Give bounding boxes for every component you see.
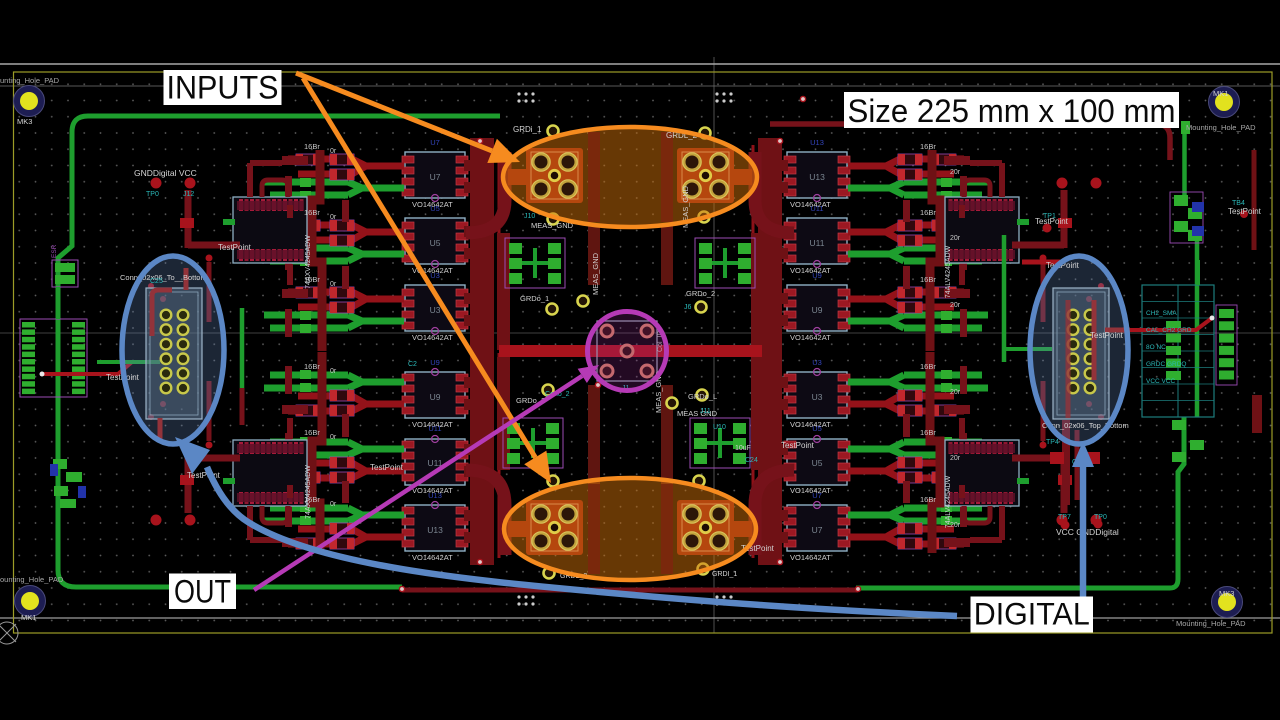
svg-text:MEAS_GND: MEAS_GND bbox=[591, 252, 600, 295]
svg-text:U5: U5 bbox=[430, 204, 440, 213]
svg-text:0r: 0r bbox=[330, 281, 337, 288]
svg-text:MK3: MK3 bbox=[1219, 589, 1234, 598]
svg-text:MEAS GND: MEAS GND bbox=[677, 409, 718, 418]
svg-text:20r: 20r bbox=[950, 169, 961, 176]
svg-text:VO14642AT: VO14642AT bbox=[790, 333, 831, 342]
svg-text:U5: U5 bbox=[812, 424, 822, 433]
svg-text:TestPoint: TestPoint bbox=[1228, 207, 1262, 216]
svg-text:74AXV4245ADW: 74AXV4245ADW bbox=[305, 235, 312, 289]
svg-text:GRDi_1: GRDi_1 bbox=[513, 125, 542, 134]
svg-text:TP0: TP0 bbox=[1094, 514, 1107, 521]
svg-text:16Br: 16Br bbox=[920, 275, 936, 284]
svg-text:GRDI_1: GRDI_1 bbox=[712, 571, 737, 578]
svg-text:U13: U13 bbox=[810, 138, 824, 147]
svg-text:VO14642AT: VO14642AT bbox=[412, 333, 453, 342]
svg-text:0r: 0r bbox=[330, 148, 337, 155]
svg-text:U5: U5 bbox=[812, 458, 823, 468]
svg-text:20r: 20r bbox=[950, 302, 961, 309]
svg-text:INPUTS: INPUTS bbox=[167, 69, 279, 105]
svg-text:U13: U13 bbox=[427, 525, 443, 535]
svg-text:Size 225 mm x 100 mm: Size 225 mm x 100 mm bbox=[848, 93, 1176, 129]
svg-text:TP4: TP4 bbox=[1046, 439, 1059, 446]
svg-text:MK3: MK3 bbox=[17, 117, 32, 126]
svg-text:Conn_02x06_To__Bottom: Conn_02x06_To__Bottom bbox=[120, 273, 207, 282]
svg-text:U7: U7 bbox=[812, 491, 822, 500]
svg-text:20r: 20r bbox=[950, 389, 961, 396]
svg-text:TB4: TB4 bbox=[1232, 200, 1245, 207]
svg-text:U3: U3 bbox=[430, 271, 440, 280]
svg-text:U11: U11 bbox=[810, 238, 825, 248]
svg-text:U7: U7 bbox=[430, 172, 441, 182]
svg-text:TestPoint: TestPoint bbox=[781, 441, 815, 450]
svg-text:16Br: 16Br bbox=[920, 208, 936, 217]
svg-text:C2: C2 bbox=[408, 361, 417, 368]
svg-text:VCC VCC: VCC VCC bbox=[1146, 378, 1176, 385]
svg-text:16Br: 16Br bbox=[304, 142, 320, 151]
svg-text:16Br: 16Br bbox=[920, 495, 936, 504]
svg-text:U11: U11 bbox=[810, 204, 823, 213]
svg-text:C25: C25 bbox=[150, 278, 163, 285]
svg-text:U9: U9 bbox=[812, 271, 822, 280]
svg-text:U9: U9 bbox=[430, 358, 440, 367]
svg-text:0r: 0r bbox=[330, 214, 337, 221]
svg-text:20r: 20r bbox=[950, 455, 961, 462]
svg-text:J6: J6 bbox=[684, 304, 692, 311]
svg-text:16Br: 16Br bbox=[920, 142, 936, 151]
svg-text:VO14642AT: VO14642AT bbox=[790, 420, 831, 429]
svg-text:DIGITAL: DIGITAL bbox=[974, 596, 1090, 632]
svg-text:GRDC GRDQ: GRDC GRDQ bbox=[1146, 361, 1186, 368]
svg-text:GRDo_1: GRDo_1 bbox=[520, 294, 549, 303]
svg-text:16Br: 16Br bbox=[304, 362, 320, 371]
svg-text:TestPoint: TestPoint bbox=[370, 463, 404, 472]
svg-text:10uF: 10uF bbox=[735, 445, 751, 452]
svg-text:TP1: TP1 bbox=[1043, 213, 1056, 220]
svg-text:0r: 0r bbox=[330, 434, 337, 441]
svg-text:VCC GNDDigital: VCC GNDDigital bbox=[1056, 527, 1119, 537]
svg-text:U13: U13 bbox=[809, 172, 825, 182]
svg-text:74ALV4245ADW: 74ALV4245ADW bbox=[945, 475, 952, 528]
svg-text:MK1: MK1 bbox=[21, 613, 36, 622]
svg-text:TestPoint: TestPoint bbox=[218, 243, 252, 252]
svg-text:8O NC: 8O NC bbox=[1146, 344, 1166, 351]
svg-text:U5: U5 bbox=[430, 238, 441, 248]
svg-text:VO14642AT: VO14642AT bbox=[790, 553, 831, 562]
svg-text:J12: J12 bbox=[183, 191, 194, 198]
svg-text:74AXV4245ADW: 74AXV4245ADW bbox=[305, 465, 312, 519]
svg-text:U3: U3 bbox=[812, 358, 822, 367]
svg-text:VO14642AT: VO14642AT bbox=[790, 486, 831, 495]
svg-text:0r: 0r bbox=[330, 368, 337, 375]
svg-text:74ALV4245ADW: 74ALV4245ADW bbox=[945, 245, 952, 298]
svg-text:J10: J10 bbox=[524, 213, 535, 220]
svg-text:16Br: 16Br bbox=[920, 428, 936, 437]
svg-text:MK1: MK1 bbox=[1213, 89, 1228, 98]
svg-text:OUT: OUT bbox=[174, 574, 231, 610]
svg-text:16Br: 16Br bbox=[304, 208, 320, 217]
svg-text:U11: U11 bbox=[428, 424, 441, 433]
svg-text:CAL_CH2 GRD: CAL_CH2 GRD bbox=[1146, 327, 1192, 334]
svg-text:0r: 0r bbox=[330, 501, 337, 508]
svg-text:GRDo_2: GRDo_2 bbox=[686, 289, 715, 298]
svg-text:Mounting_Hole_PAD: Mounting_Hole_PAD bbox=[1186, 123, 1256, 132]
svg-text:CH2_SMA: CH2_SMA bbox=[1146, 310, 1177, 317]
svg-text:VO14642AT: VO14642AT bbox=[412, 553, 453, 562]
svg-text:U13: U13 bbox=[428, 491, 442, 500]
svg-text:U7: U7 bbox=[430, 138, 440, 147]
svg-text:ESR: ESR bbox=[51, 244, 58, 258]
svg-text:16Br: 16Br bbox=[920, 362, 936, 371]
svg-text:GNDDigital VCC: GNDDigital VCC bbox=[134, 168, 197, 178]
svg-text:ounting_Hole_PAD: ounting_Hole_PAD bbox=[0, 575, 64, 584]
svg-text:U10: U10 bbox=[713, 424, 726, 431]
svg-text:TestPoint: TestPoint bbox=[1090, 331, 1124, 340]
svg-text:VO14642AT: VO14642AT bbox=[790, 266, 831, 275]
svg-text:U3: U3 bbox=[812, 392, 823, 402]
svg-text:unting_Hole_PAD: unting_Hole_PAD bbox=[0, 76, 60, 85]
svg-text:U9: U9 bbox=[812, 305, 823, 315]
svg-text:C24: C24 bbox=[745, 457, 758, 464]
svg-text:U7: U7 bbox=[812, 525, 823, 535]
svg-text:TP0: TP0 bbox=[146, 191, 159, 198]
svg-text:20r: 20r bbox=[950, 235, 961, 242]
svg-text:16Br: 16Br bbox=[304, 428, 320, 437]
svg-text:U3: U3 bbox=[430, 305, 441, 315]
svg-text:GRDo_L: GRDo_L bbox=[688, 392, 717, 401]
svg-text:U9: U9 bbox=[430, 392, 441, 402]
svg-text:TP7: TP7 bbox=[1058, 514, 1071, 521]
svg-text:Mounting_Hole_PAD: Mounting_Hole_PAD bbox=[1176, 619, 1246, 628]
svg-text:J11: J11 bbox=[700, 408, 711, 415]
